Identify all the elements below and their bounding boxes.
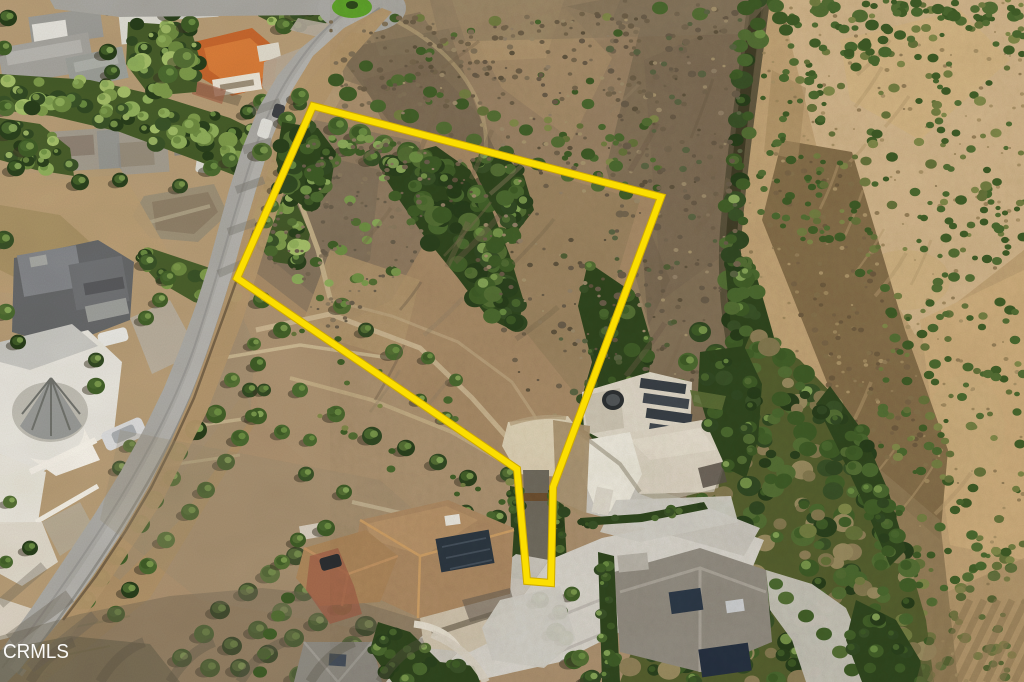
svg-text:CRMLS: CRMLS	[3, 640, 69, 663]
